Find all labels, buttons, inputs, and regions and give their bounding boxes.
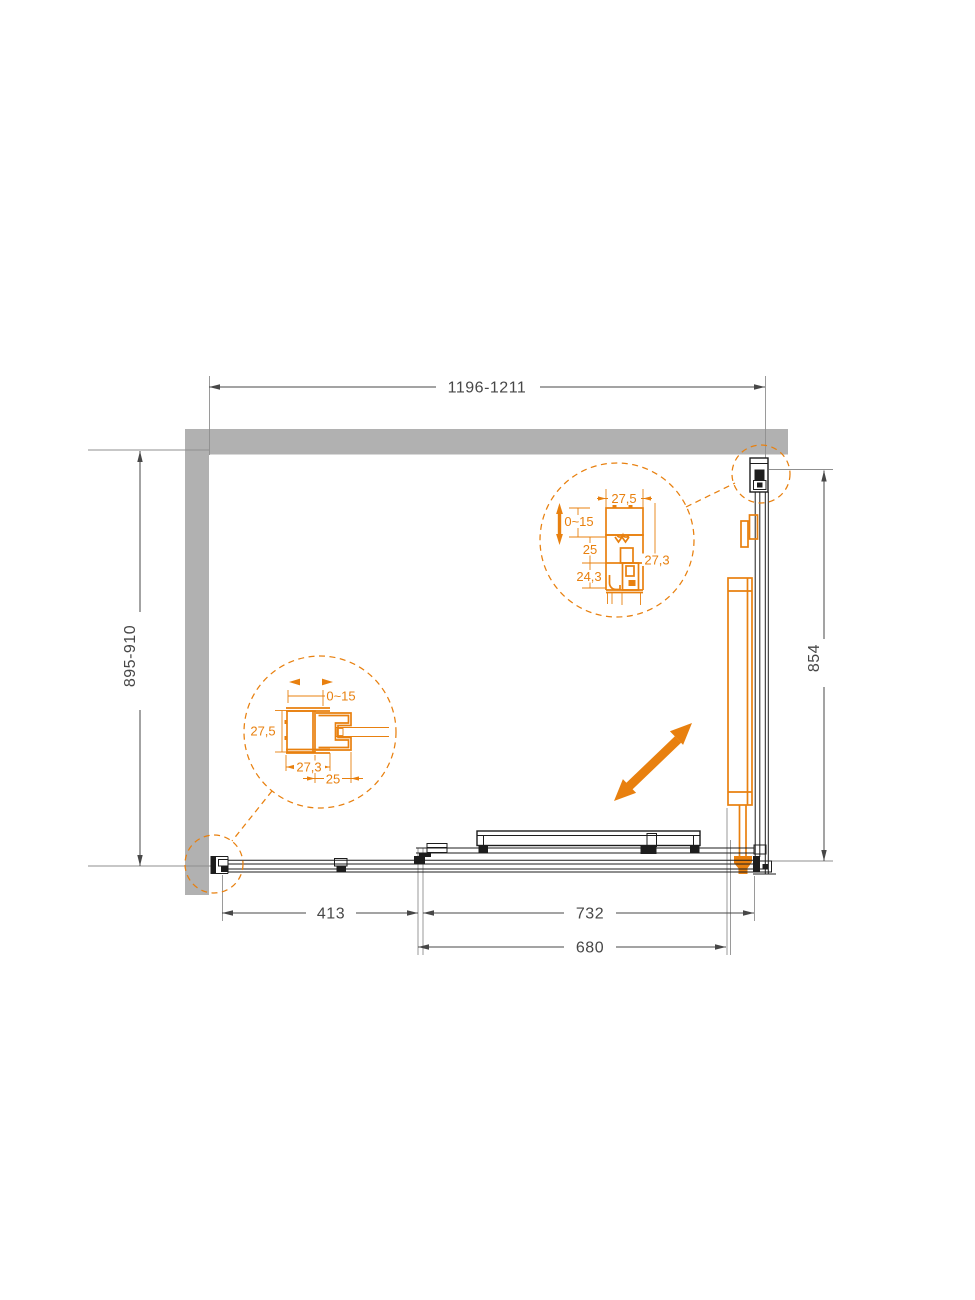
door-hanger-clip <box>750 515 758 539</box>
detail-left-profile-width-label: 27,3 <box>296 760 321 775</box>
corner-bracket-bottom-right <box>753 845 776 874</box>
dim-right-height-label: 854 <box>806 644 823 672</box>
dim-left-depth-label: 895-910 <box>122 625 139 687</box>
top-wall <box>185 429 788 455</box>
detail-right-side-label: 27,3 <box>644 553 669 568</box>
walls <box>185 429 788 895</box>
callout-leader-left <box>232 791 272 841</box>
detail-left-adjust-label: 0~15 <box>326 689 355 704</box>
dimension-right-height: 854 <box>806 471 827 862</box>
slide-direction-arrow <box>614 723 692 801</box>
dim-top-width-label: 1196-1211 <box>448 380 527 397</box>
right-wall-profile <box>750 458 768 492</box>
dimension-top-width: 1196-1211 <box>209 380 765 397</box>
door-bottom-roller <box>734 856 752 869</box>
adjust-arrow-vertical <box>556 503 563 545</box>
detail-right: 27,5 0~15 25 24,3 27,3 <box>556 489 672 605</box>
door-hanger-clip <box>741 521 748 547</box>
dimension-bottom-door: 680 <box>418 940 726 957</box>
left-wall <box>185 429 209 895</box>
dimension-bottom-fixed: 413 <box>222 906 418 923</box>
dim-bottom-door-label: 680 <box>576 940 604 957</box>
dimension-left-depth: 895-910 <box>122 451 143 866</box>
bottom-sliding-door <box>477 831 700 853</box>
dim-bottom-opening-label: 732 <box>576 906 604 923</box>
right-fixed-glass <box>755 492 768 874</box>
detail-right-lower-depth-label: 24,3 <box>576 569 601 584</box>
dim-bottom-fixed-label: 413 <box>317 906 345 923</box>
right-sliding-door <box>728 515 758 874</box>
detail-callout-circles <box>185 445 790 893</box>
technical-drawing-canvas: 1196-1211 895-910 854 413 732 680 <box>0 0 975 1300</box>
detail-right-adjust-label: 0~15 <box>564 514 593 529</box>
adjust-arrow-horizontal <box>289 679 333 686</box>
bottom-track <box>228 848 769 872</box>
detail-right-depth-label: 25 <box>583 542 597 557</box>
callout-leader-right <box>686 483 735 507</box>
detail-left: 0~15 27,5 27,3 25 <box>248 679 389 787</box>
door-roller-foot <box>690 846 700 854</box>
dimension-bottom-opening: 732 <box>423 906 754 923</box>
detail-left-depth-label: 25 <box>326 772 340 787</box>
detail-left-width-label: 27,5 <box>250 724 275 739</box>
bottom-left-wall-profile <box>211 856 229 874</box>
door-roller-foot <box>479 846 489 854</box>
detail-right-width-label: 27,5 <box>611 491 636 506</box>
